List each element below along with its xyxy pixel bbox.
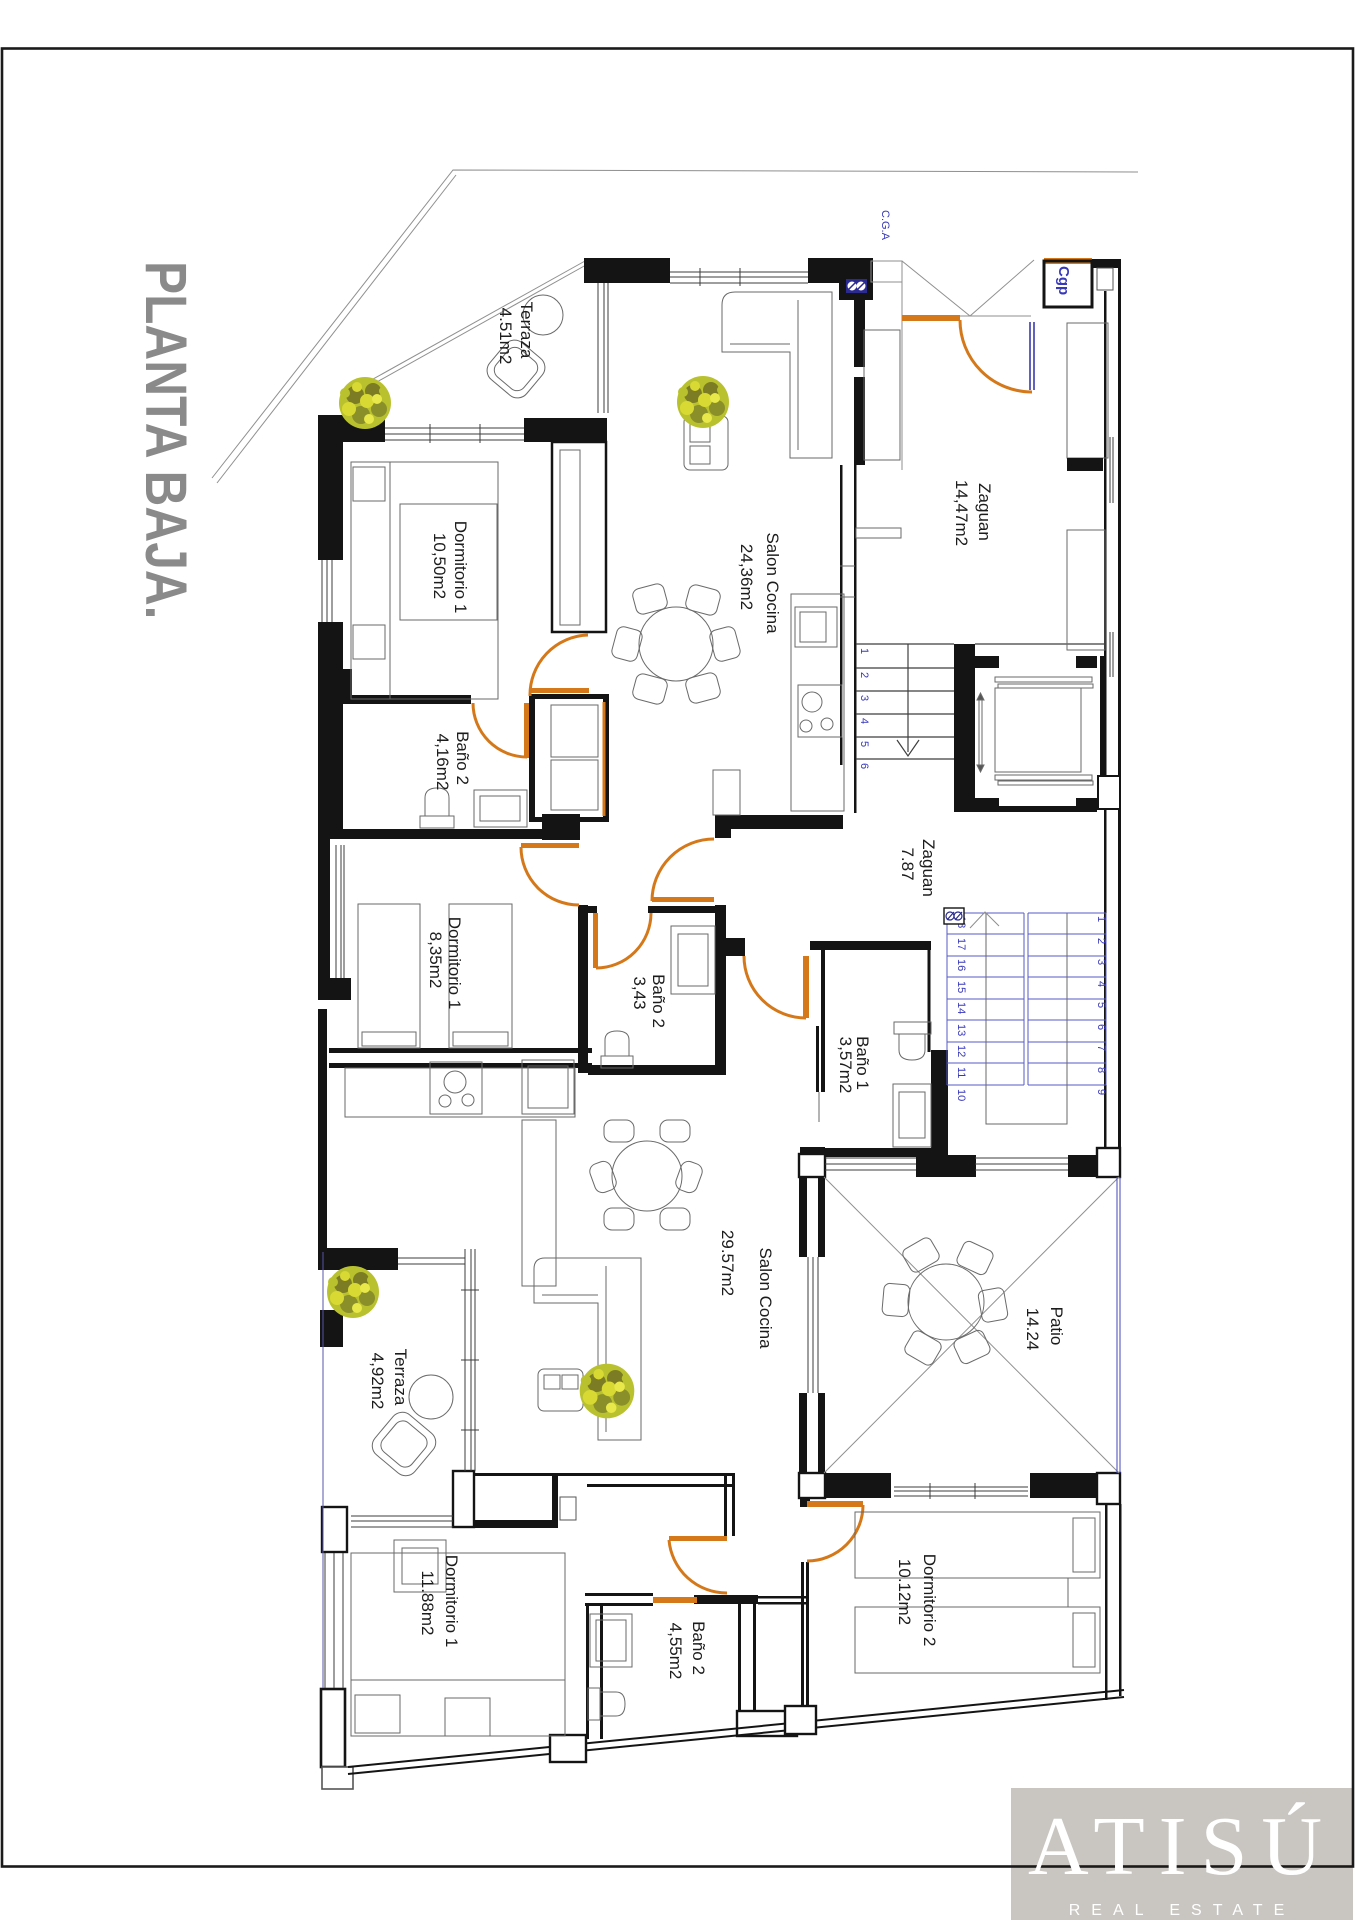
svg-text:29.57m2: 29.57m2	[718, 1230, 737, 1296]
svg-text:7: 7	[1095, 1045, 1107, 1051]
svg-text:7.87: 7.87	[898, 847, 917, 880]
svg-text:12: 12	[955, 1045, 967, 1057]
svg-text:Dormitorio 2: Dormitorio 2	[920, 1554, 939, 1647]
svg-text:11: 11	[955, 1067, 967, 1078]
svg-text:3,57m2: 3,57m2	[836, 1037, 855, 1094]
svg-text:4,16m2: 4,16m2	[433, 734, 452, 791]
svg-text:15: 15	[955, 981, 967, 993]
svg-text:4.51m2: 4.51m2	[496, 308, 515, 365]
svg-text:1: 1	[858, 648, 870, 654]
svg-text:3,43: 3,43	[630, 976, 649, 1009]
svg-text:3: 3	[858, 695, 870, 701]
svg-text:2: 2	[858, 672, 870, 678]
svg-text:10.12m2: 10.12m2	[895, 1559, 914, 1625]
svg-text:Dormitorio 1: Dormitorio 1	[445, 917, 464, 1010]
svg-text:Terraza: Terraza	[391, 1349, 410, 1406]
svg-text:REAL ESTATE: REAL ESTATE	[1069, 1902, 1296, 1919]
svg-text:17: 17	[955, 938, 967, 950]
svg-text:10,50m2: 10,50m2	[430, 533, 449, 599]
svg-text:PLANTA BAJA.: PLANTA BAJA.	[133, 261, 197, 619]
svg-text:14.24: 14.24	[1023, 1308, 1042, 1351]
svg-text:Dormitorio 1: Dormitorio 1	[451, 521, 470, 614]
svg-text:4,92m2: 4,92m2	[368, 1353, 387, 1410]
svg-text:4: 4	[1095, 981, 1107, 987]
svg-text:2: 2	[1095, 938, 1107, 944]
svg-text:8: 8	[1095, 1067, 1107, 1073]
svg-text:1: 1	[1095, 916, 1107, 922]
svg-text:4,55m2: 4,55m2	[666, 1623, 685, 1680]
svg-text:8,35m2: 8,35m2	[426, 932, 445, 989]
svg-text:11.88m2: 11.88m2	[418, 1571, 437, 1636]
svg-text:6: 6	[1095, 1024, 1107, 1030]
svg-text:24,36m2: 24,36m2	[737, 544, 756, 610]
svg-text:Patio: Patio	[1047, 1307, 1066, 1346]
svg-text:13: 13	[955, 1024, 967, 1036]
svg-text:C.G.A: C.G.A	[879, 210, 891, 241]
svg-text:Salon Cocina: Salon Cocina	[756, 1247, 775, 1349]
svg-text:Terraza: Terraza	[517, 302, 536, 359]
svg-text:ATISÚ: ATISÚ	[1028, 1800, 1336, 1893]
svg-text:Baño 2: Baño 2	[453, 731, 472, 785]
svg-text:Baño 2: Baño 2	[689, 1621, 708, 1675]
svg-text:Cgp: Cgp	[1055, 266, 1072, 295]
svg-text:5: 5	[1095, 1002, 1107, 1008]
svg-text:16: 16	[955, 959, 967, 971]
svg-text:Baño 2: Baño 2	[649, 974, 668, 1028]
svg-text:4: 4	[858, 718, 870, 724]
svg-text:Dormitorio 1: Dormitorio 1	[442, 1555, 461, 1648]
svg-text:9: 9	[1095, 1089, 1107, 1095]
svg-text:14,47m2: 14,47m2	[952, 480, 971, 546]
svg-text:6: 6	[858, 763, 870, 769]
svg-text:Zaguan: Zaguan	[919, 839, 938, 897]
svg-text:14: 14	[955, 1002, 967, 1014]
svg-text:10: 10	[955, 1089, 967, 1101]
svg-text:3: 3	[1095, 959, 1107, 965]
svg-text:Salon Cocina: Salon Cocina	[763, 532, 782, 634]
svg-text:Zaguan: Zaguan	[975, 483, 994, 541]
svg-text:5: 5	[858, 741, 870, 747]
